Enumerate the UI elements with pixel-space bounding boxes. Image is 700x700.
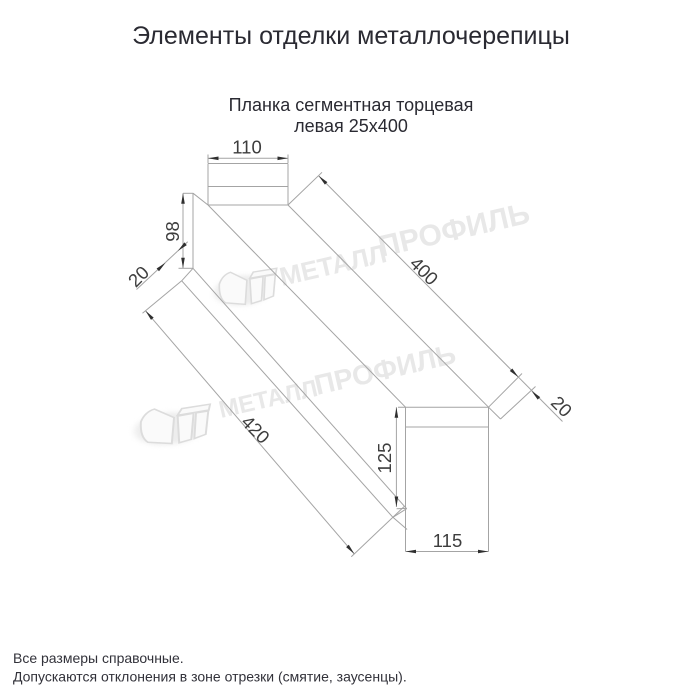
svg-text:115: 115 [433,530,463,551]
svg-text:Все размеры справочные.: Все размеры справочные. [13,650,184,666]
svg-text:левая 25х400: левая 25х400 [294,116,408,136]
svg-text:Допускаются отклонения в зоне: Допускаются отклонения в зоне отрезки (с… [13,669,407,685]
svg-text:Элементы отделки металлочерепи: Элементы отделки металлочерепицы [132,22,570,50]
svg-text:110: 110 [232,137,262,158]
svg-text:Планка сегментная торцевая: Планка сегментная торцевая [229,95,474,115]
svg-text:98: 98 [162,221,183,242]
svg-text:125: 125 [374,443,395,474]
